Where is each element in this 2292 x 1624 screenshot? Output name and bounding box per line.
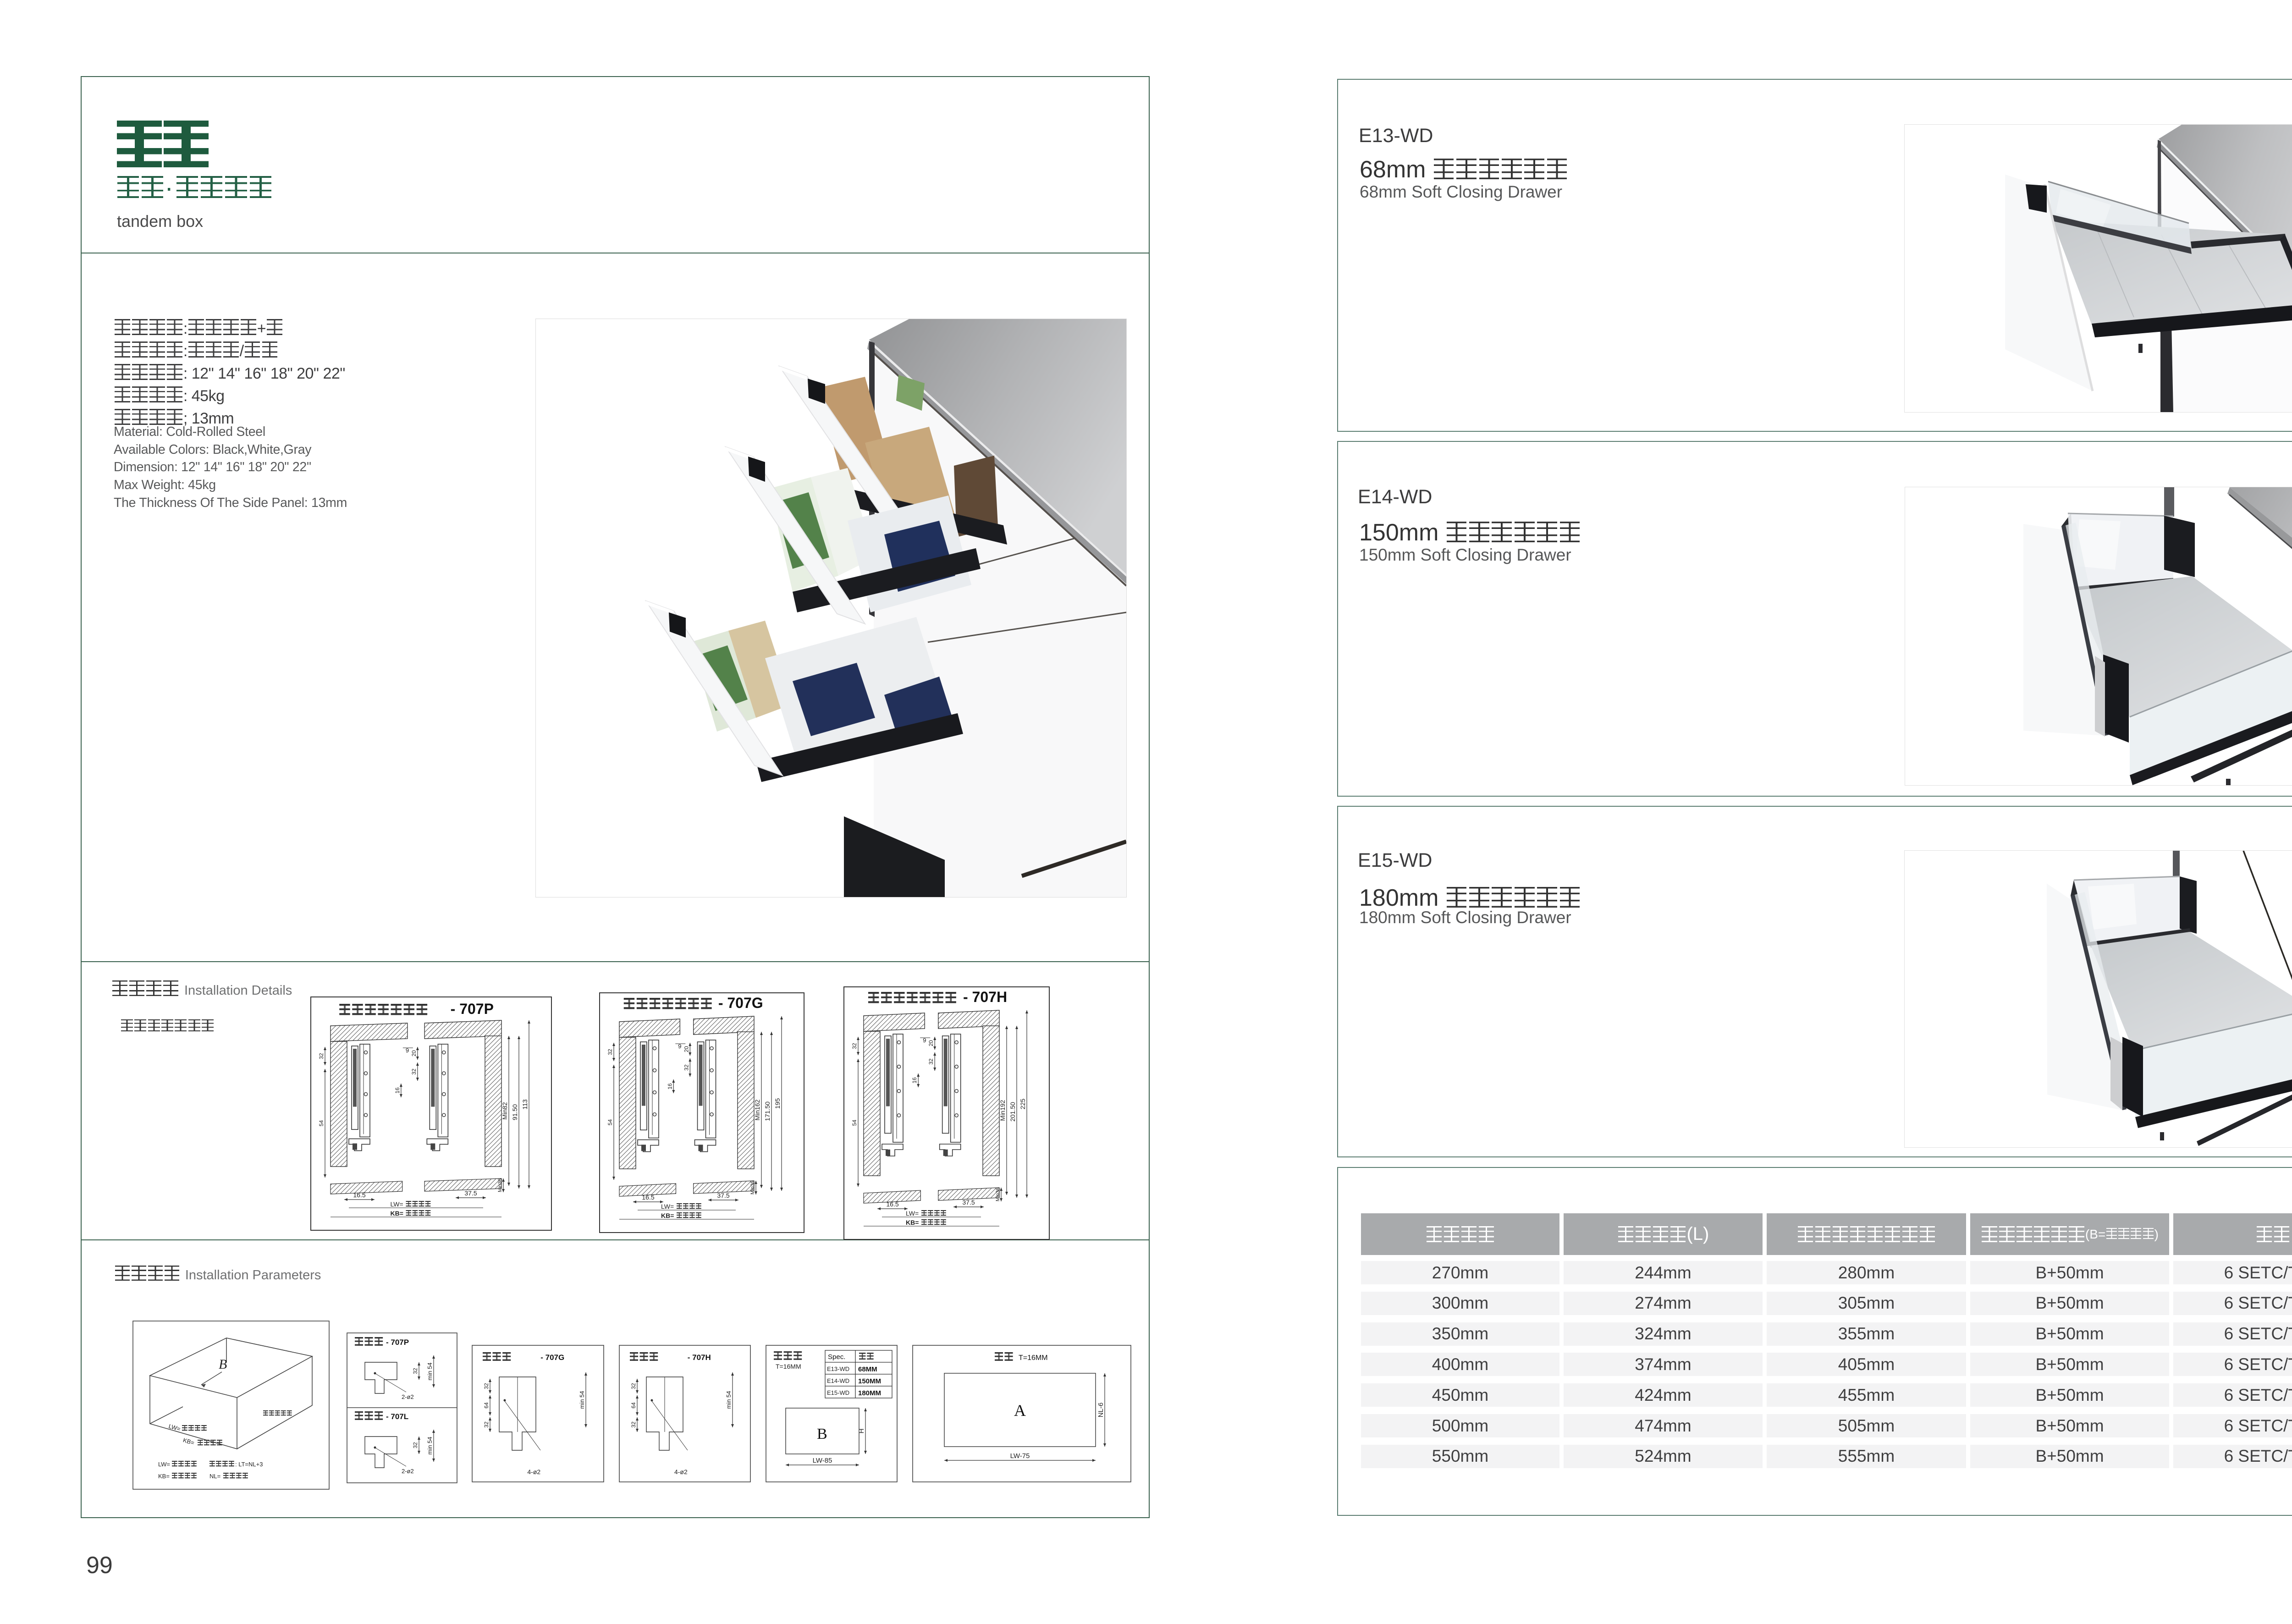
- svg-text:180MM: 180MM: [858, 1389, 881, 1397]
- svg-text:32: 32: [412, 1442, 419, 1448]
- svg-text:32: 32: [483, 1383, 490, 1389]
- svg-text:E14-WD: E14-WD: [827, 1377, 849, 1384]
- svg-text:32: 32: [928, 1058, 934, 1065]
- svg-text:16: 16: [667, 1083, 673, 1090]
- svg-text:64: 64: [483, 1402, 490, 1409]
- svg-text:4-ø2: 4-ø2: [527, 1468, 540, 1475]
- svg-text:32: 32: [630, 1383, 637, 1389]
- svg-text:min 54: min 54: [426, 1362, 433, 1380]
- svg-text:LW=: LW=: [661, 1203, 674, 1210]
- svg-text:- 707H: - 707H: [963, 989, 1007, 1005]
- svg-text:Min36: Min36: [750, 1181, 755, 1195]
- svg-text:E15-WD: E15-WD: [827, 1389, 849, 1396]
- svg-text:2-ø2: 2-ø2: [402, 1468, 414, 1475]
- svg-text:16.5: 16.5: [642, 1194, 654, 1201]
- svg-text:171.50: 171.50: [764, 1101, 771, 1121]
- svg-text:Spec.: Spec.: [828, 1353, 845, 1361]
- svg-text:32: 32: [851, 1043, 858, 1049]
- svg-text:A: A: [1014, 1401, 1026, 1420]
- svg-text:NL=: NL=: [209, 1473, 220, 1480]
- svg-text:B: B: [817, 1426, 827, 1442]
- svg-text:32: 32: [607, 1049, 613, 1055]
- svg-text:37.5: 37.5: [464, 1189, 477, 1197]
- svg-text:32: 32: [318, 1053, 325, 1059]
- svg-text:37.5: 37.5: [962, 1199, 975, 1206]
- svg-text:20: 20: [928, 1040, 934, 1046]
- svg-text:B: B: [219, 1357, 227, 1372]
- svg-text:32: 32: [630, 1421, 637, 1428]
- svg-text:KB=: KB=: [158, 1473, 170, 1480]
- svg-text:54: 54: [318, 1120, 325, 1127]
- svg-text:16: 16: [394, 1087, 401, 1094]
- svg-text:16: 16: [911, 1077, 918, 1084]
- svg-text:64: 64: [630, 1402, 637, 1409]
- svg-text:- 707P: - 707P: [451, 1001, 494, 1017]
- svg-text:201.50: 201.50: [1009, 1102, 1016, 1122]
- svg-text:20: 20: [411, 1050, 417, 1057]
- svg-text:Min192: Min192: [999, 1100, 1006, 1121]
- svg-text:KB=: KB=: [906, 1219, 919, 1226]
- svg-text:32: 32: [412, 1368, 419, 1374]
- svg-text:min 54: min 54: [579, 1391, 585, 1409]
- svg-text:Min82: Min82: [501, 1102, 508, 1119]
- svg-text:H: H: [858, 1429, 865, 1434]
- svg-text:- 707G: - 707G: [718, 995, 763, 1011]
- svg-text:195: 195: [774, 1098, 781, 1109]
- svg-text:min 54: min 54: [725, 1391, 732, 1409]
- svg-text:LW-75: LW-75: [1010, 1452, 1030, 1460]
- svg-text:32: 32: [683, 1064, 689, 1071]
- svg-text:LW=: LW=: [158, 1461, 170, 1468]
- svg-text:20: 20: [683, 1046, 689, 1052]
- svg-text:225: 225: [1019, 1099, 1026, 1110]
- svg-text:Min36: Min36: [497, 1178, 503, 1192]
- svg-text:4-ø2: 4-ø2: [674, 1468, 688, 1475]
- svg-text:- 707H: - 707H: [688, 1353, 711, 1362]
- svg-text:150MM: 150MM: [858, 1377, 881, 1385]
- svg-text:LW-85: LW-85: [813, 1457, 832, 1464]
- svg-text:- 707P: - 707P: [386, 1338, 409, 1347]
- svg-text:Min162: Min162: [754, 1099, 761, 1120]
- svg-text:54: 54: [851, 1120, 858, 1126]
- svg-text:- 707G: - 707G: [540, 1353, 564, 1362]
- svg-text:37.5: 37.5: [717, 1192, 729, 1199]
- svg-text:min 54: min 54: [426, 1437, 433, 1454]
- svg-text:T=16MM: T=16MM: [776, 1363, 801, 1370]
- svg-text:: LT=NL+3: : LT=NL+3: [235, 1461, 263, 1468]
- svg-text:LW=: LW=: [906, 1210, 919, 1217]
- svg-text:68MM: 68MM: [858, 1365, 877, 1373]
- svg-text:32: 32: [411, 1068, 417, 1075]
- svg-text:54: 54: [607, 1119, 613, 1126]
- svg-text:KB=: KB=: [391, 1210, 403, 1217]
- svg-text:2-ø2: 2-ø2: [402, 1393, 414, 1400]
- svg-text:113: 113: [521, 1099, 529, 1110]
- svg-text:NL-6: NL-6: [1097, 1403, 1105, 1418]
- svg-text:T=16MM: T=16MM: [1019, 1354, 1048, 1362]
- svg-text:LW=: LW=: [391, 1200, 403, 1208]
- svg-text:32: 32: [483, 1421, 490, 1428]
- svg-text:KB=: KB=: [661, 1212, 674, 1219]
- svg-text:Min36: Min36: [995, 1188, 1001, 1201]
- svg-text:16.5: 16.5: [886, 1200, 898, 1208]
- svg-text:- 707L: - 707L: [386, 1412, 408, 1421]
- svg-text:E13-WD: E13-WD: [827, 1365, 849, 1372]
- svg-text:16.5: 16.5: [353, 1191, 365, 1199]
- svg-text:91.50: 91.50: [511, 1104, 518, 1120]
